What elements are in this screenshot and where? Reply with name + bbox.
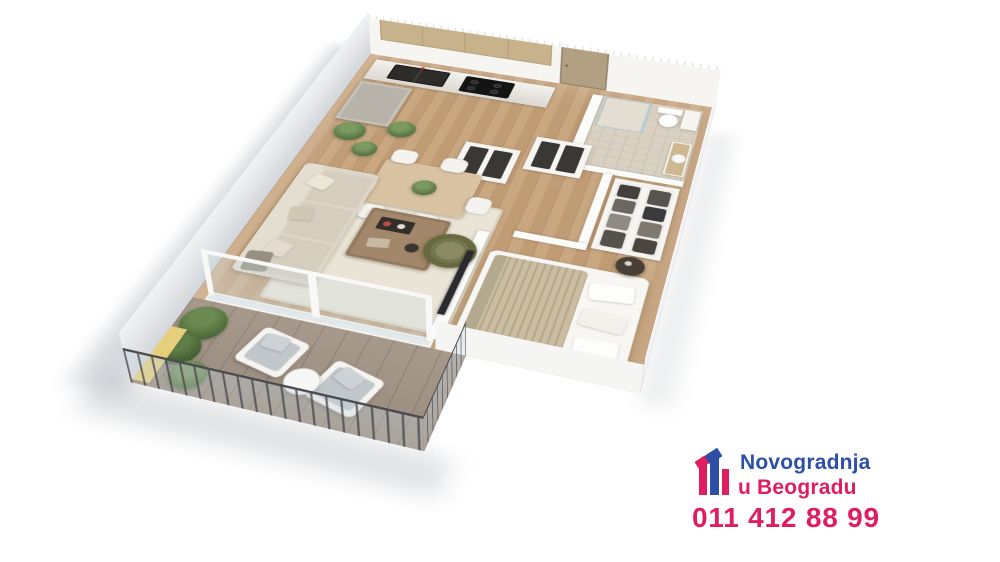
shelf-opening <box>555 145 585 174</box>
serving-tray <box>375 216 416 234</box>
books <box>366 238 391 249</box>
folded-clothes <box>646 189 672 207</box>
tall-cabinet <box>335 81 413 127</box>
folded-clothes <box>636 221 662 239</box>
burner <box>466 85 477 91</box>
potted-plant <box>348 140 381 158</box>
buildings-icon <box>695 450 731 502</box>
logo-bar-pink-left <box>699 464 707 495</box>
wardrobe <box>591 178 680 261</box>
folded-clothes <box>616 184 641 200</box>
folded-clothes <box>642 206 667 223</box>
logo-bar-blue <box>710 456 719 495</box>
sink-basin <box>670 153 687 165</box>
table-item <box>624 261 633 267</box>
door-handle <box>565 64 568 67</box>
folded-clothes <box>599 229 626 249</box>
brand-name-line2: u Beogradu <box>738 476 857 500</box>
potted-plant <box>328 120 370 142</box>
burner <box>492 83 503 89</box>
folded-clothes <box>605 213 631 231</box>
shower-glass <box>639 103 653 133</box>
folded-clothes <box>611 198 636 214</box>
phone-number: 011 412 88 99 <box>692 502 880 534</box>
real-estate-ad-image: Novogradnja u Beogradu 011 412 88 99 <box>0 0 1000 562</box>
bathroom-vanity <box>662 141 692 177</box>
brand-block: Novogradnja u Beogradu 011 412 88 99 <box>695 448 905 543</box>
bed-pillow <box>577 307 629 335</box>
apartment-3d-render <box>131 54 716 496</box>
sofa-pillow <box>287 206 315 220</box>
logo-bar-pink-right <box>722 469 729 495</box>
table-plant <box>408 179 440 197</box>
burner <box>489 89 500 95</box>
shelf-island-a <box>522 137 592 179</box>
burner <box>469 79 480 85</box>
tray-item <box>396 223 406 229</box>
shower <box>595 97 653 134</box>
bed-pillow <box>588 283 635 305</box>
folded-clothes <box>632 238 658 256</box>
bowl <box>402 242 420 253</box>
brand-name-line1: Novogradnja <box>740 451 871 475</box>
washing-machine <box>680 110 701 131</box>
tray-item <box>382 221 392 227</box>
